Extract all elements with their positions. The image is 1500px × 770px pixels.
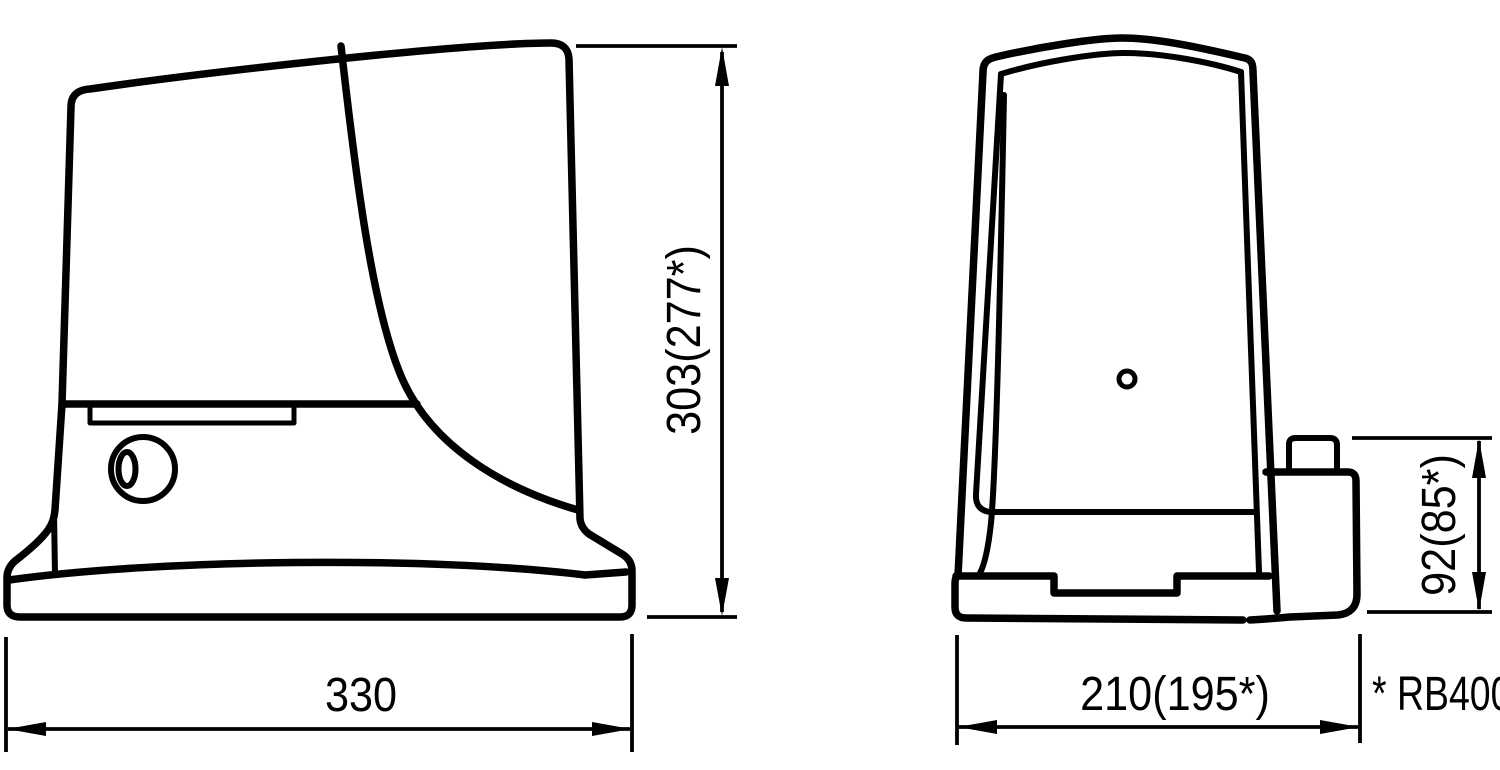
arrowhead-up-icon (1472, 439, 1486, 478)
arrowhead-down-icon (1472, 572, 1486, 611)
arrowhead-down-icon (715, 578, 729, 616)
front-view (955, 38, 1357, 620)
arrowhead-right-icon (592, 722, 631, 736)
dim-label-side-height: 303(277*) (657, 245, 711, 435)
front-top-rim-inner (1001, 53, 1241, 74)
dim-label-front-width: 210(195*) (1080, 667, 1270, 721)
arrowhead-up-icon (715, 47, 729, 86)
dim-side-height: 303(277*) (576, 46, 737, 617)
front-face-hole-icon (1119, 371, 1135, 387)
side-view-outline (7, 43, 632, 617)
gate-motor-dimension-drawing: 303(277*) 330 210(195*) 92(85*) * RB400 (0, 0, 1500, 770)
dim-label-side-width: 330 (325, 668, 397, 722)
keyhole-slot-icon (119, 452, 136, 486)
side-view (7, 43, 632, 617)
rear-bracket-knob (1289, 438, 1337, 472)
technical-drawing-page: 303(277*) 330 210(195*) 92(85*) * RB400 (0, 0, 1500, 770)
footnote-label: * RB400 (1372, 668, 1500, 722)
dim-front-width: 210(195*) (957, 634, 1360, 745)
front-base-plate-top-edge (956, 576, 1269, 593)
dim-label-front-block-height: 92(85*) (1412, 454, 1466, 596)
dim-front-block-height: 92(85*) (1352, 438, 1492, 612)
arrowhead-left-icon (958, 720, 997, 734)
front-base-plate (955, 575, 1243, 620)
base-top-arc (9, 562, 626, 580)
front-left-edge-inner (976, 74, 1256, 512)
dim-side-width: 330 (6, 634, 632, 752)
arrowhead-left-icon (7, 722, 46, 736)
rear-bracket-block (1250, 472, 1357, 620)
cover-split-curve (341, 46, 578, 510)
arrowhead-right-icon (1320, 720, 1359, 734)
body-left-edge-lower (54, 512, 55, 575)
